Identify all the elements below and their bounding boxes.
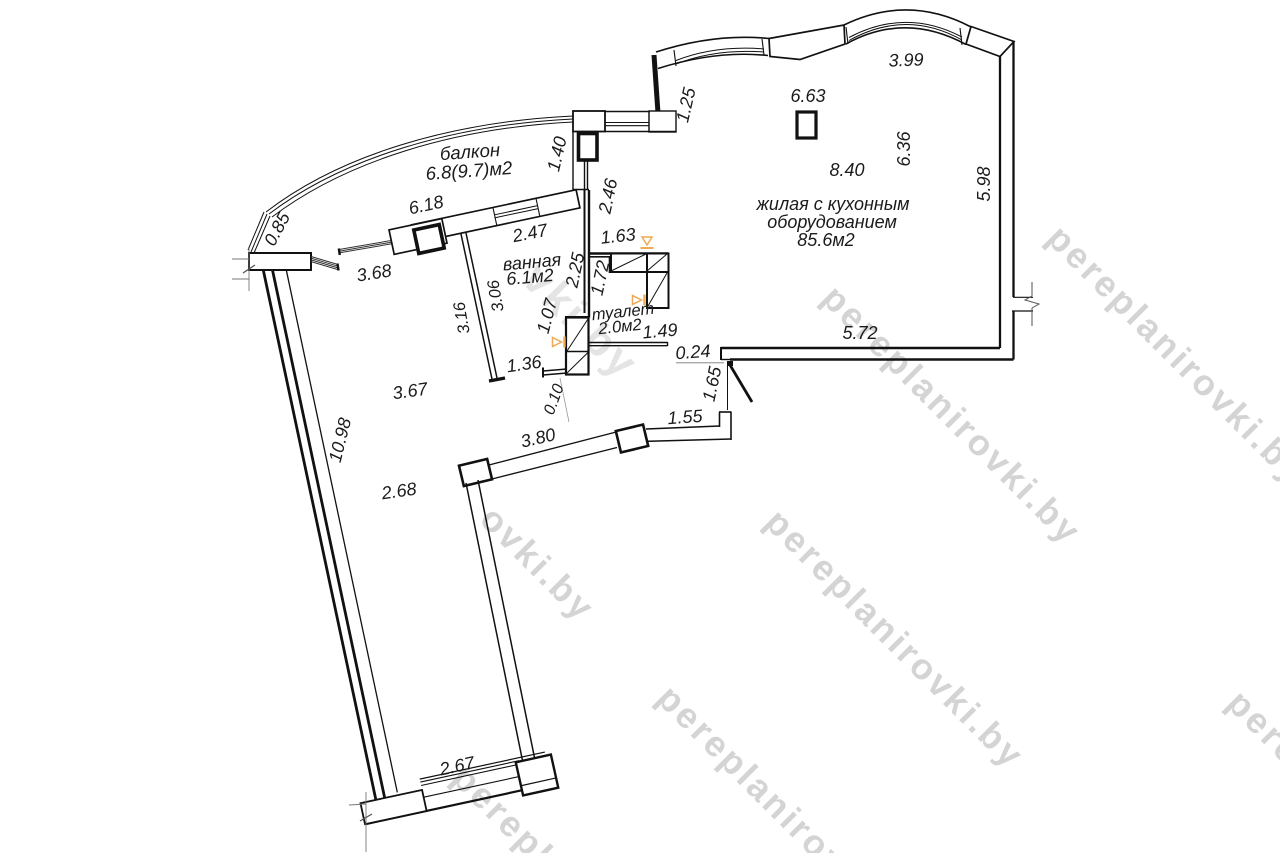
svg-text:85.6м2: 85.6м2	[797, 230, 854, 250]
svg-text:5.72: 5.72	[842, 323, 877, 343]
svg-text:1.49: 1.49	[642, 320, 679, 343]
svg-text:6.63: 6.63	[790, 86, 825, 106]
svg-text:6.36: 6.36	[894, 131, 914, 167]
svg-text:жилая с кухонным: жилая с кухонным	[756, 194, 910, 214]
svg-text:1.55: 1.55	[667, 406, 704, 428]
svg-text:8.40: 8.40	[829, 160, 864, 180]
svg-text:5.98: 5.98	[974, 166, 994, 201]
svg-text:6.1м2: 6.1м2	[506, 265, 555, 289]
svg-text:1.63: 1.63	[600, 224, 637, 248]
svg-text:3.99: 3.99	[888, 49, 924, 70]
svg-text:оборудованием: оборудованием	[767, 212, 897, 232]
svg-text:0.24: 0.24	[675, 341, 711, 363]
